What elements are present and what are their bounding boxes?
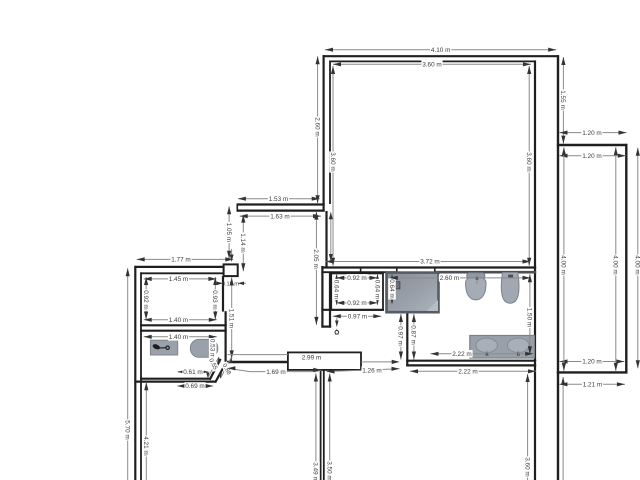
svg-text:3.60 m: 3.60 m xyxy=(523,457,530,477)
svg-text:1.40 m: 1.40 m xyxy=(169,317,189,324)
svg-text:1.21 m: 1.21 m xyxy=(583,382,603,389)
svg-text:1.40 m: 1.40 m xyxy=(169,334,189,341)
svg-text:0.92 m: 0.92 m xyxy=(142,290,149,310)
svg-text:1.05 m: 1.05 m xyxy=(225,223,232,243)
svg-text:1.51 m: 1.51 m xyxy=(227,309,234,329)
svg-text:2.22 m: 2.22 m xyxy=(452,351,472,358)
svg-text:2.60 m: 2.60 m xyxy=(440,275,460,282)
svg-text:1.20 m: 1.20 m xyxy=(582,153,602,160)
svg-text:0.64 m: 0.64 m xyxy=(332,280,339,300)
svg-text:0.64 m: 0.64 m xyxy=(388,279,395,299)
svg-text:0.69 m: 0.69 m xyxy=(185,383,205,390)
svg-text:3.60 m: 3.60 m xyxy=(422,62,442,69)
svg-text:3.72 m: 3.72 m xyxy=(420,259,440,266)
svg-text:1.26 m: 1.26 m xyxy=(362,367,382,374)
svg-text:0.93 m: 0.93 m xyxy=(211,290,218,310)
svg-text:3.60 m: 3.60 m xyxy=(525,152,532,172)
svg-text:1.69 m: 1.69 m xyxy=(266,369,286,376)
svg-text:0.61 m: 0.61 m xyxy=(183,369,203,376)
svg-text:1.77 m: 1.77 m xyxy=(171,257,191,264)
svg-text:1.63 m: 1.63 m xyxy=(270,213,290,220)
svg-text:4.00 m: 4.00 m xyxy=(612,255,619,275)
svg-text:1.20 m: 1.20 m xyxy=(582,130,602,137)
svg-text:1.53 m: 1.53 m xyxy=(269,196,289,203)
svg-text:4.00 m: 4.00 m xyxy=(634,255,640,275)
svg-text:1.14 m: 1.14 m xyxy=(239,233,246,253)
svg-text:0.64 m: 0.64 m xyxy=(373,280,380,300)
svg-text:2.99 m: 2.99 m xyxy=(302,354,322,361)
svg-text:1.50 m: 1.50 m xyxy=(526,308,533,328)
svg-text:4.10 m: 4.10 m xyxy=(431,47,451,54)
svg-text:1.45 m: 1.45 m xyxy=(169,276,189,283)
svg-text:0.97 m: 0.97 m xyxy=(348,313,368,320)
svg-text:2.05 m: 2.05 m xyxy=(312,249,319,269)
svg-text:1.55 m: 1.55 m xyxy=(559,90,566,110)
svg-text:3.60 m: 3.60 m xyxy=(329,152,336,172)
svg-text:0.53 m: 0.53 m xyxy=(209,339,216,359)
svg-text:3.49 m: 3.49 m xyxy=(312,462,319,480)
svg-text:0.92 m: 0.92 m xyxy=(347,300,367,307)
svg-text:0.97 m: 0.97 m xyxy=(397,326,404,346)
svg-text:2.60 m: 2.60 m xyxy=(313,117,320,137)
svg-text:1.20 m: 1.20 m xyxy=(582,359,602,366)
svg-text:4.00 m: 4.00 m xyxy=(560,255,567,275)
svg-text:0.92 m: 0.92 m xyxy=(347,275,367,282)
svg-text:4.21 m: 4.21 m xyxy=(142,436,149,456)
svg-text:5.70 m: 5.70 m xyxy=(123,420,130,440)
svg-text:2.22 m: 2.22 m xyxy=(458,369,478,376)
svg-text:0.87 m: 0.87 m xyxy=(410,325,417,345)
svg-text:3.50 m: 3.50 m xyxy=(326,461,333,480)
